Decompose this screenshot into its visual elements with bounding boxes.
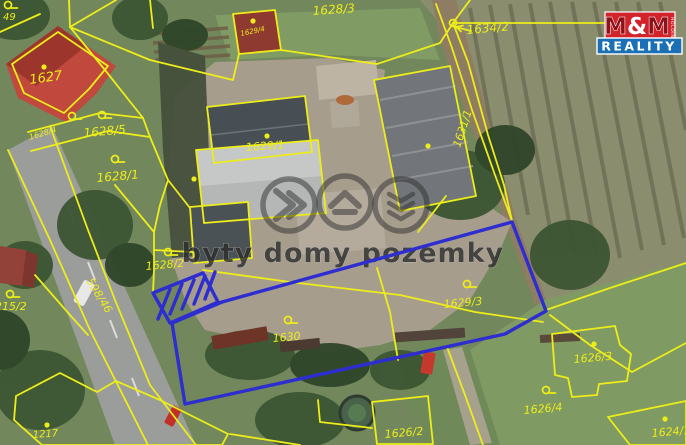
building-dot — [250, 18, 255, 23]
logo-reality-text: REALITY — [601, 39, 677, 54]
cadastral-map[interactable]: 4916271628/51628/41628/11628/21628/31629… — [0, 0, 686, 445]
building-dot — [191, 176, 196, 181]
building-dot — [264, 133, 269, 138]
parcel-label: 49 — [3, 12, 16, 23]
parcel-label: 1630 — [272, 330, 301, 345]
cadastral-map-screenshot: 4916271628/51628/41628/11628/21628/31629… — [0, 0, 686, 445]
building-dot — [44, 422, 49, 427]
parcel-label: 1629/1 — [245, 138, 285, 154]
mm-reality-logo: M&M HOLDING REALITY — [597, 12, 682, 54]
building-dot — [41, 64, 46, 69]
building-dot — [425, 143, 430, 148]
parcel-label: 1215/2 — [0, 300, 27, 313]
parcel-label: 1217 — [32, 428, 59, 441]
building-dot — [591, 341, 596, 346]
parcel-label: 1628/3 — [312, 1, 355, 18]
logo-mm-text: M&M — [604, 14, 670, 40]
building-dot — [662, 416, 667, 421]
watermark-text: byty domy pozemky — [182, 238, 504, 269]
